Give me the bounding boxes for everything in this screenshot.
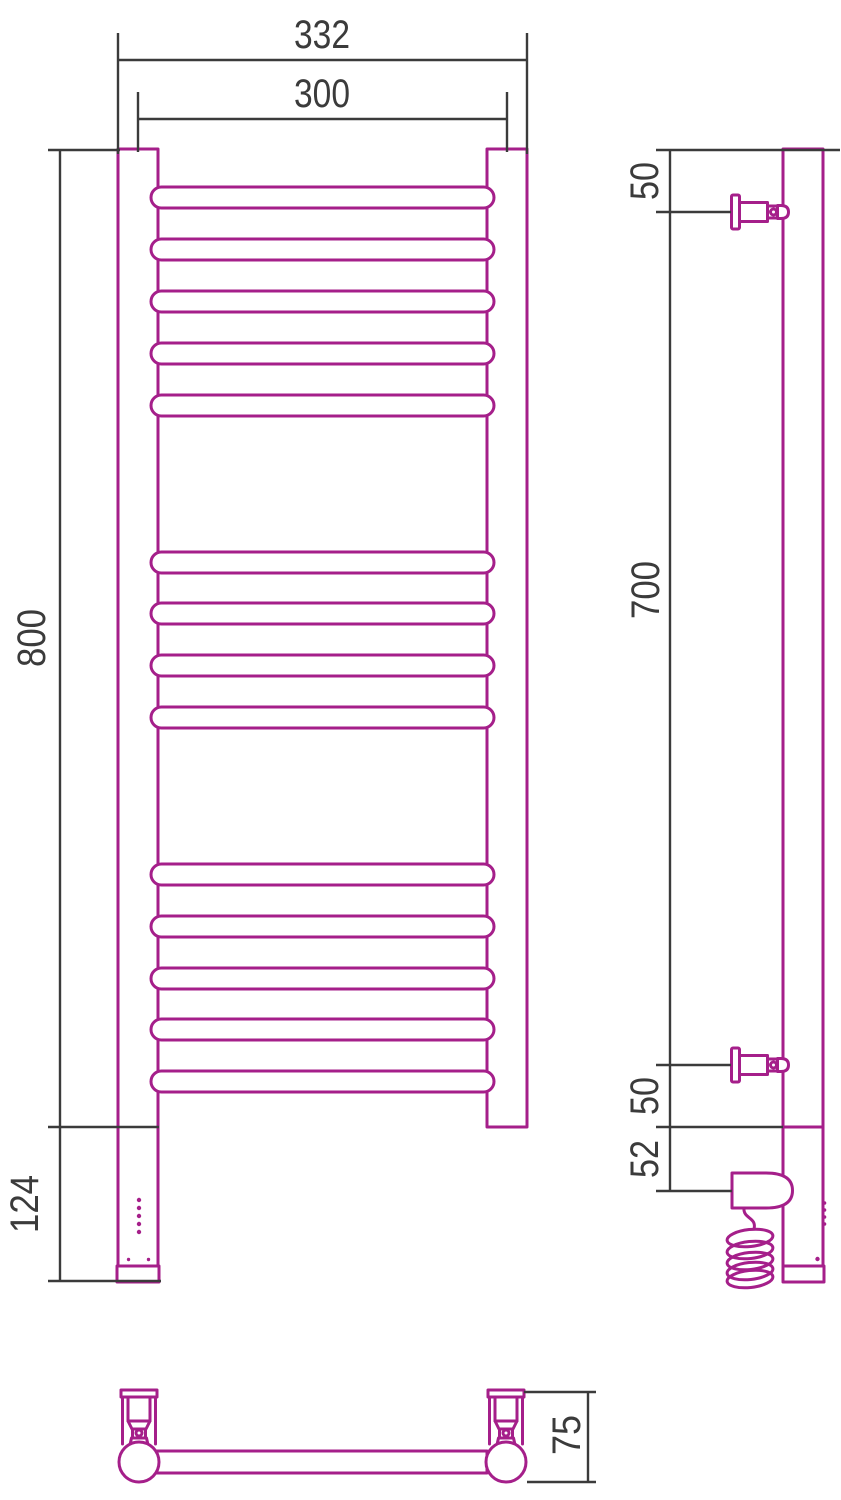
led-dot [823, 1215, 827, 1219]
side-view: 50 700 50 52 [623, 149, 840, 1290]
bracket-cap [778, 1059, 789, 1072]
rung [151, 603, 494, 624]
bottom-left-post-circle [119, 1442, 159, 1482]
rung [151, 239, 494, 260]
dim-label-124: 124 [3, 1175, 47, 1233]
bracket-body [740, 1056, 768, 1075]
dim-label-52: 52 [623, 1140, 667, 1178]
rung [151, 187, 494, 208]
front-view: 332 300 800 124 [3, 13, 527, 1282]
dim-label-300: 300 [294, 72, 350, 116]
rung [151, 707, 494, 728]
bottom-view: 75 [119, 1390, 596, 1482]
rung [151, 655, 494, 676]
dim-label-bottom-50: 50 [623, 1077, 667, 1115]
led-dot [823, 1208, 827, 1212]
bottom-rung-bar [157, 1451, 487, 1473]
side-tube [783, 149, 823, 1266]
rung [151, 395, 494, 416]
front-left-post [118, 149, 158, 1266]
towel-rail-technical-drawing: 332 300 800 124 [0, 0, 841, 1500]
power-cord-coil [726, 1208, 774, 1290]
rung-group [151, 187, 494, 1092]
led-dot [823, 1201, 827, 1205]
dim-label-top-50: 50 [623, 162, 667, 200]
bracket-cap [778, 206, 789, 219]
housing-screw-dot [147, 1258, 150, 1261]
bottom-left-bracket [121, 1390, 157, 1447]
rung [151, 552, 494, 573]
rung [151, 291, 494, 312]
rung [151, 968, 494, 989]
dim-label-700: 700 [624, 561, 668, 619]
dim-depth: 75 [524, 1392, 596, 1482]
side-bottom-bracket [732, 1048, 789, 1082]
indicator-dot [137, 1206, 141, 1210]
rung [151, 864, 494, 885]
side-tube-bottom-cap [783, 1266, 824, 1282]
rung [151, 916, 494, 937]
heating-element [732, 1173, 793, 1208]
side-top-bracket [732, 195, 789, 229]
housing-screw-dot [127, 1258, 130, 1261]
bottom-right-bracket [488, 1390, 524, 1447]
bottom-right-post-circle [486, 1442, 526, 1482]
bracket-body [128, 1397, 150, 1421]
dim-label-332: 332 [294, 13, 350, 57]
bracket-body [495, 1397, 517, 1421]
indicator-dot [137, 1230, 141, 1234]
bracket-body [740, 203, 768, 222]
indicator-dot [137, 1214, 141, 1218]
indicator-dot [137, 1198, 141, 1202]
rung [151, 1071, 494, 1092]
front-left-post-bottom-cap [117, 1266, 159, 1282]
rung [151, 343, 494, 364]
indicator-dot [137, 1222, 141, 1226]
rung [151, 1019, 494, 1040]
dim-label-75: 75 [545, 1415, 589, 1455]
dim-label-800: 800 [10, 609, 54, 667]
technical-drawing-page: 332 300 800 124 [0, 0, 841, 1500]
dim-center-width: 300 [138, 72, 507, 152]
side-screw-dot [815, 1257, 819, 1261]
led-dot [823, 1222, 827, 1226]
